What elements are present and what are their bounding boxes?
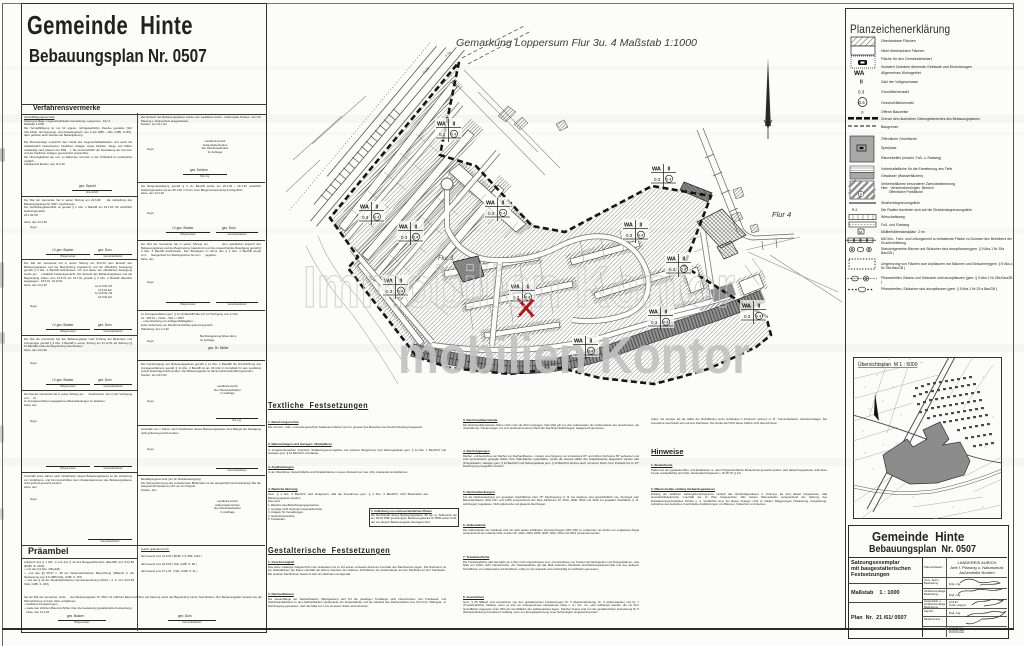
svg-text:Flur 4: Flur 4	[772, 210, 791, 219]
svg-text:o: o	[861, 110, 864, 115]
svg-text:mobilien Kontor: mobilien Kontor	[398, 327, 750, 385]
svg-text:Übersichtsplan M 1 : 5000: Übersichtsplan M 1 : 5000	[858, 361, 918, 368]
svg-text:0.4: 0.4	[859, 100, 866, 105]
svg-text:M: M	[859, 230, 862, 234]
svg-text:WA: WA	[854, 70, 865, 77]
svg-text:P: P	[860, 193, 863, 197]
svg-text:Immobilien Kontor: Immobilien Kontor	[303, 255, 735, 320]
svg-text:II: II	[860, 80, 863, 86]
svg-text:0.3: 0.3	[858, 90, 865, 95]
svg-text:R-4: R-4	[852, 208, 857, 212]
svg-text:Gemarkung Loppersum Flur 3: Gemarkung Loppersum Flur 3u. 4 Maßstab 1…	[456, 37, 697, 49]
